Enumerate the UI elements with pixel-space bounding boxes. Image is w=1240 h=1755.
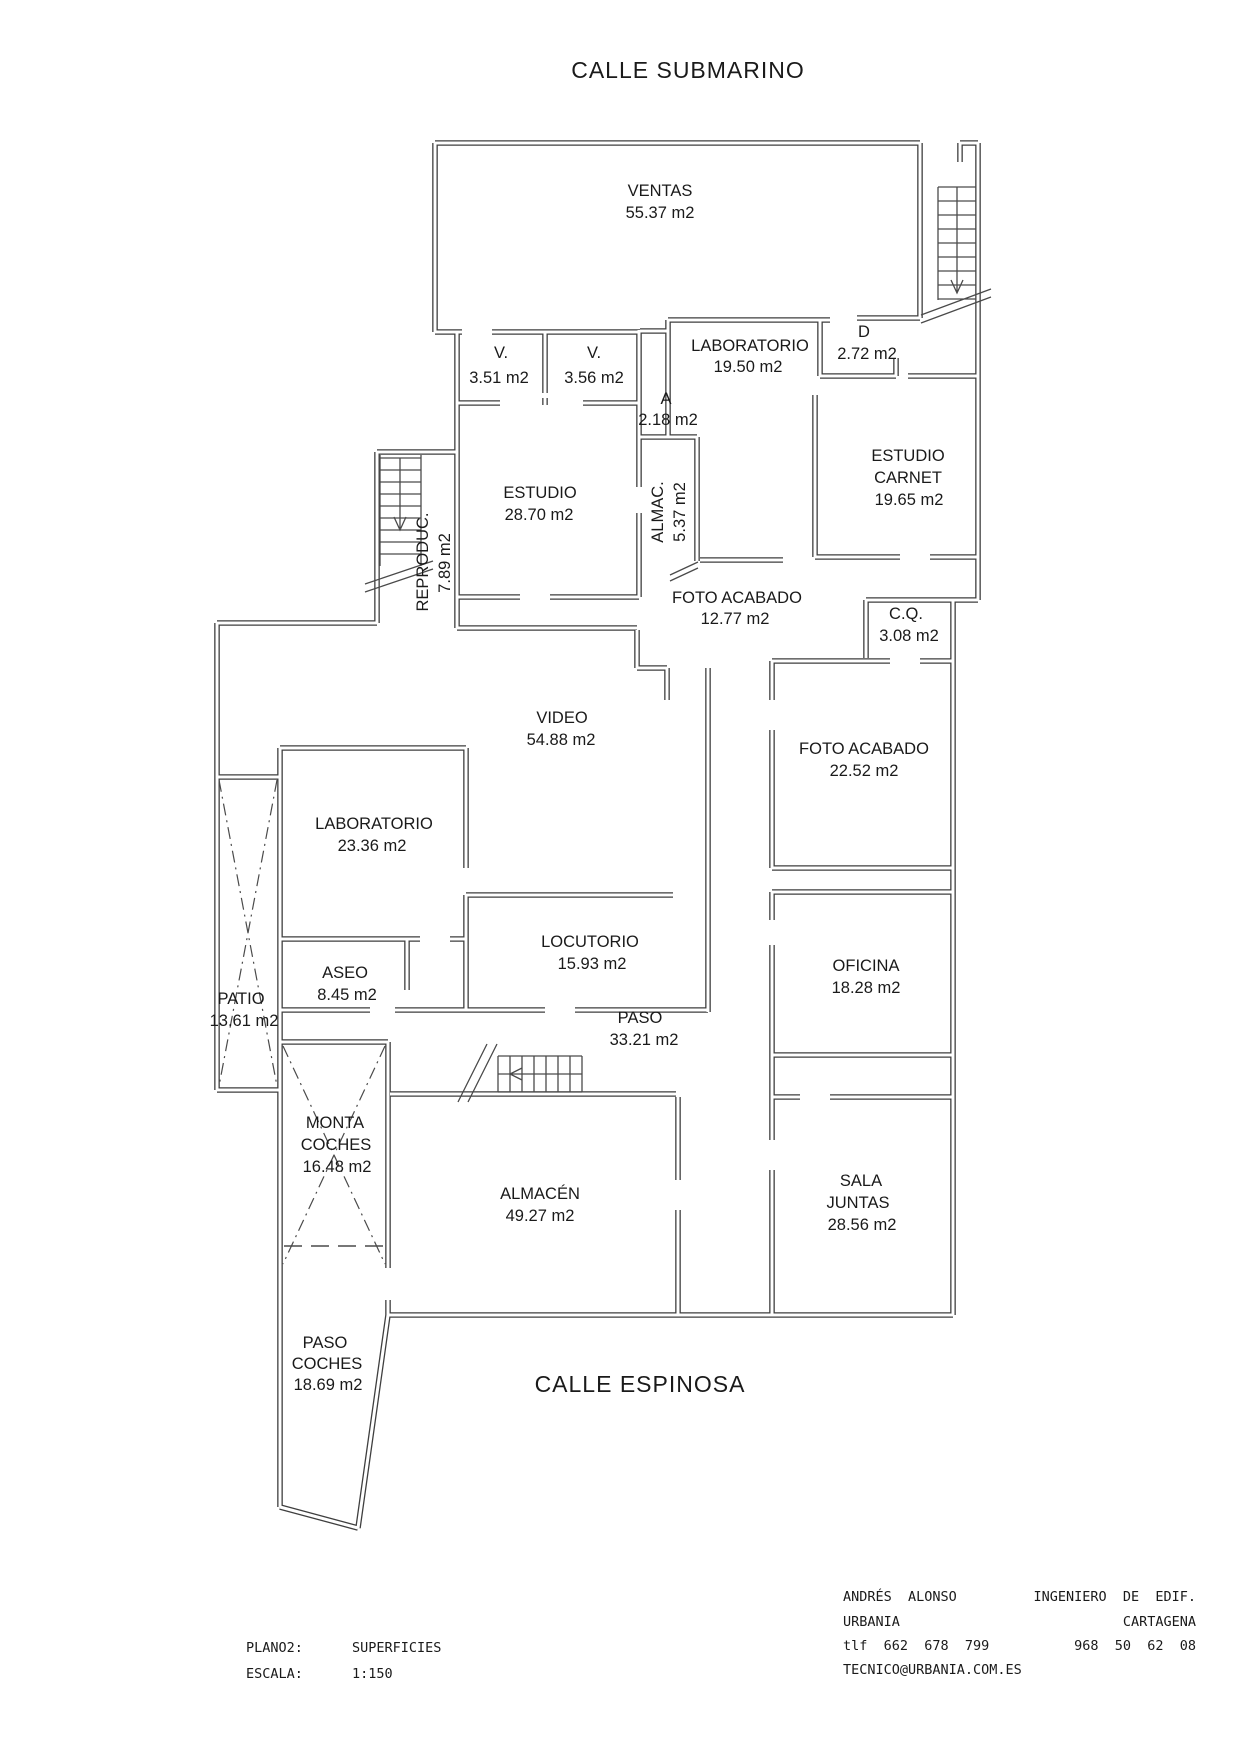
phone-number-2: 968 50 62 08 — [1074, 1638, 1196, 1654]
room-area-cq: 3.08 m2 — [879, 627, 939, 645]
monta-coches-cross — [283, 1046, 385, 1264]
room-label-ventas: VENTAS — [628, 182, 693, 200]
room-area-monta-coches: 16.48 m2 — [303, 1158, 372, 1176]
room-label-video: VIDEO — [536, 709, 588, 727]
plano-value: SUPERFICIES — [352, 1640, 441, 1656]
room-label-sala-juntas-1: SALA — [840, 1172, 882, 1190]
room-area-reproduc: 7.89 m2 — [436, 533, 454, 593]
room-label-laboratorio1: LABORATORIO — [691, 337, 809, 355]
room-area-locutorio: 15.93 m2 — [558, 955, 627, 973]
floor-plan-canvas: CALLE SUBMARINO CALLE ESPINOSA VENTAS 55… — [0, 0, 1240, 1755]
room-label-patio: PATIO — [217, 990, 264, 1008]
room-label-v1: V. — [494, 344, 508, 362]
room-label-cq: C.Q. — [889, 605, 923, 623]
room-label-reproduc: REPRODUC. — [414, 512, 432, 611]
room-area-v2: 3.56 m2 — [564, 369, 624, 387]
escala-value: 1:150 — [352, 1666, 393, 1682]
room-area-oficina: 18.28 m2 — [832, 979, 901, 997]
room-area-estudio: 28.70 m2 — [505, 506, 574, 524]
room-area-v1: 3.51 m2 — [469, 369, 529, 387]
room-label-estudio-carnet-2: CARNET — [874, 469, 942, 487]
floor-plan-page: CALLE SUBMARINO CALLE ESPINOSA VENTAS 55… — [0, 0, 1240, 1755]
patio-cross — [219, 780, 277, 1086]
room-label-paso-coches-1: PASO — [303, 1334, 348, 1352]
room-area-foto-acabado1: 12.77 m2 — [701, 610, 770, 628]
room-area-laboratorio2: 23.36 m2 — [338, 837, 407, 855]
title-block: PLANO2: SUPERFICIES ESCALA: 1:150 ANDRÉS… — [246, 1588, 1196, 1682]
room-label-foto-acabado2: FOTO ACABADO — [799, 740, 929, 758]
email-address: TECNICO@URBANIA.COM.ES — [843, 1662, 1022, 1678]
room-area-almacen: 49.27 m2 — [506, 1207, 575, 1225]
city-name: CARTAGENA — [1123, 1614, 1196, 1630]
room-area-ventas: 55.37 m2 — [626, 204, 695, 222]
room-label-a: A — [660, 390, 671, 408]
room-label-estudio-carnet-1: ESTUDIO — [871, 447, 945, 465]
author-name: ANDRÉS ALONSO — [843, 1588, 957, 1605]
room-label-paso: PASO — [618, 1009, 663, 1027]
room-labels: VENTAS 55.37 m2 V. 3.51 m2 V. 3.56 m2 LA… — [210, 182, 945, 1394]
plano-label: PLANO2: — [246, 1640, 303, 1656]
room-area-foto-acabado2: 22.52 m2 — [830, 762, 899, 780]
room-label-oficina: OFICINA — [833, 957, 900, 975]
room-area-laboratorio1: 19.50 m2 — [714, 358, 783, 376]
street-label-bottom: CALLE ESPINOSA — [535, 1371, 746, 1397]
room-label-almac: ALMAC. — [649, 481, 667, 542]
room-label-sala-juntas-2: JUNTAS — [827, 1194, 890, 1212]
room-area-aseo: 8.45 m2 — [317, 986, 377, 1004]
escala-label: ESCALA: — [246, 1666, 303, 1682]
room-label-laboratorio2: LABORATORIO — [315, 815, 433, 833]
engineer-title: INGENIERO DE EDIF. — [1033, 1589, 1196, 1605]
room-area-estudio-carnet: 19.65 m2 — [875, 491, 944, 509]
room-label-d: D — [858, 323, 870, 341]
room-label-monta-coches-2: COCHES — [301, 1136, 372, 1154]
phone-number: tlf 662 678 799 — [843, 1638, 989, 1654]
room-label-paso-coches-2: COCHES — [292, 1355, 363, 1373]
room-area-patio: 13.61 m2 — [210, 1012, 279, 1030]
room-label-monta-coches-1: MONTA — [306, 1114, 364, 1132]
room-area-almac: 5.37 m2 — [671, 482, 689, 542]
street-label-top: CALLE SUBMARINO — [571, 57, 805, 83]
room-label-estudio: ESTUDIO — [503, 484, 577, 502]
room-label-aseo: ASEO — [322, 964, 368, 982]
room-area-a: 2.18 m2 — [638, 411, 698, 429]
room-label-locutorio: LOCUTORIO — [541, 933, 639, 951]
room-area-sala-juntas: 28.56 m2 — [828, 1216, 897, 1234]
door-leaf-almac — [670, 562, 698, 581]
room-area-paso-coches: 18.69 m2 — [294, 1376, 363, 1394]
room-area-paso: 33.21 m2 — [610, 1031, 679, 1049]
room-area-d: 2.72 m2 — [837, 345, 897, 363]
room-label-almacen: ALMACÉN — [500, 1184, 580, 1203]
room-label-foto-acabado1: FOTO ACABADO — [672, 589, 802, 607]
room-area-video: 54.88 m2 — [527, 731, 596, 749]
room-label-v2: V. — [587, 344, 601, 362]
company-name: URBANIA — [843, 1614, 900, 1630]
